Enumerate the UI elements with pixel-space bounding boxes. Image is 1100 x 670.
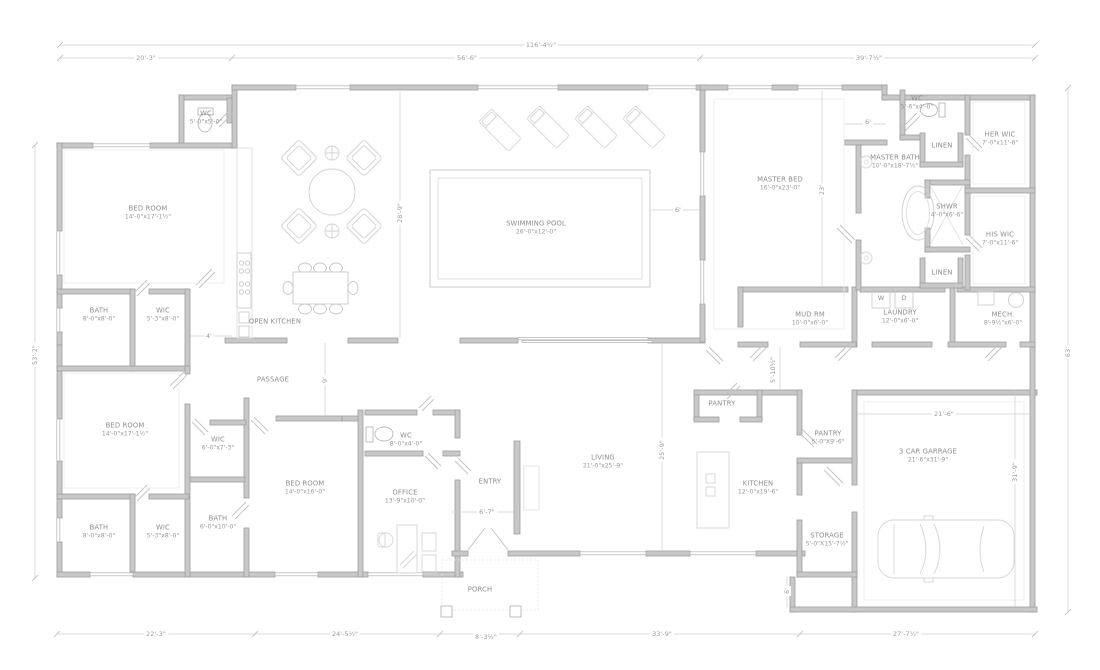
room-label-storage: STORAGE 5'-0"X15'-7½" [806,532,849,549]
room-label-open-kitchen: OPEN KITCHEN [249,318,301,327]
dim-passage: 9' [321,375,329,385]
room-size: 10'-0"x18'-7½" [870,162,920,170]
console-table-icon [524,466,539,510]
room-name: WC [400,432,412,440]
room-label-passage: PASSAGE [257,376,289,385]
room-name: WIC [156,524,170,532]
dim-garage-width: 21'-6" [932,410,956,418]
room-label-wc-1: WC 5'-0"x5'-0" [190,110,222,127]
room-size: 5'-0"X9'-6" [811,438,844,446]
room-name: PORCH [468,586,492,594]
room-name: LIVING [591,454,615,462]
dim-pool-height: 28'-9" [396,201,404,225]
room-label-master-bed: MASTER BED 16'-0"x23'-0" [757,176,803,193]
room-name: OPEN KITCHEN [249,318,301,326]
room-name: HER WIC [985,131,1016,139]
bathtub-icon [902,186,934,240]
room-label-pantry-walkin: PANTRY [709,400,736,409]
room-name: ENTRY [479,478,502,486]
room-size: 6'-0"x7'-3" [202,444,234,452]
dim-top-overall: 116'-4½" [524,41,558,49]
room-name: PANTRY [815,430,842,438]
room-label-porch: PORCH [468,586,492,595]
dim-entry-width: 6'-7" [477,508,497,516]
room-size: 8'-0"x8'-0" [83,532,115,540]
room-label-wic-2: WIC 6'-0"x7'-3" [202,436,234,453]
room-size: 21'-0"x25'-9" [583,462,623,470]
room-name: BED ROOM [129,205,168,213]
room-name: MECH. [992,311,1015,319]
room-size: 10'-0"x6'-0" [792,319,828,327]
room-size: 12'-0"x19'-6" [738,488,778,496]
room-label-bedroom-2: BED ROOM 14'-0"x17'-1½" [102,422,148,439]
room-size: 7'-0"x11'-6" [982,139,1018,147]
dim-bottom-2: 24'-5½" [330,630,360,638]
room-name: LINEN [931,142,952,150]
dim-bottom-5: 27'-7½" [891,630,921,638]
dim-storage-side: 6' [783,586,791,596]
room-size: 5'-3"x8'-0" [147,532,179,540]
room-name: 3 CAR GARRAGE [899,448,957,456]
dim-bottom-3: 8'-3½" [473,633,499,641]
room-size: 5'-6"x4'-0" [901,103,933,111]
washer-label: W [878,294,884,302]
vanity-sinks-icon [860,156,872,264]
room-size: 12'-0"x6'-0" [882,317,918,325]
car-icon [878,516,1014,582]
room-size: 6'-0"x10'-0" [200,523,236,531]
floor-plan-drawing [0,0,1100,670]
room-label-wic-3: WIC 5'-3"x8'-0" [147,524,179,541]
room-name: MUD RM [795,311,825,319]
dim-top-mid: 56'-6" [455,54,479,62]
room-label-master-bath: MASTER BATH 10'-0"x18'-7½" [870,154,920,171]
doors [134,110,1002,550]
room-name: OFFICE [392,489,417,497]
room-name: MASTER BATH [870,154,920,162]
room-name: BATH [209,515,228,523]
lounge-chairs-icon [479,106,665,151]
room-label-mech: MECH. 8'-9½"x6'-0" [984,311,1022,328]
dim-living-height: 25'-9" [658,438,666,462]
room-size: 14'-0"x17'-1½" [125,213,171,221]
room-size: 7'-0"x11'-6" [982,239,1018,247]
room-label-bath-3: BATH 6'-0"x10'-0" [200,515,236,532]
windows [57,86,842,576]
room-label-garage: 3 CAR GARRAGE 21'-6"x31'-9" [899,448,957,465]
room-label-shower: SHWR 4'-0"x6'-6" [931,203,963,220]
room-name: WIC [211,436,225,444]
dim-bottom-4: 33'-9" [650,630,674,638]
room-label-entry: ENTRY [479,478,502,487]
room-size: 21'-6"x31'-9" [899,456,957,464]
water-heater-icon [978,292,1024,308]
room-size: 14'-0"x17'-1½" [102,430,148,438]
kitchen-island-icon [697,452,729,528]
room-label-linen-2: LINEN [931,269,952,278]
sitting-area-icon [281,140,383,245]
room-label-bedroom-1: BED ROOM 14'-0"x17'-1½" [125,205,171,222]
office-desk-icon [378,525,436,573]
room-size: 14'-0"x16'-0" [285,488,325,496]
room-size: 8'-0"x4'-0" [390,440,422,448]
room-label-swimming-pool: SWIMMING POOL 26'-0"x12'-0" [506,220,566,237]
room-name: BED ROOM [286,480,325,488]
room-label-wc-3: WC 5'-6"x4'-0" [901,95,933,112]
room-label-bath-1: BATH 8'-0"x8'-0" [83,307,115,324]
room-name: MASTER BED [757,176,803,184]
room-size: 5'-0"x5'-0" [190,118,222,126]
room-name: BED ROOM [106,422,145,430]
room-size: 8'-0"x8'-0" [83,315,115,323]
dim-pool-right: 6' [673,206,683,214]
dim-master-depth: 23' [818,183,826,197]
dim-right-overall: 63' [1064,345,1072,359]
room-size: 26'-0"x12'-0" [506,228,566,236]
room-name: PASSAGE [257,376,289,384]
room-label-pantry: PANTRY 5'-0"X9'-6" [811,430,844,447]
dim-bottom-1: 22'-3" [144,630,168,638]
room-label-her-wic: HER WIC 7'-0"x11'-6" [982,131,1018,148]
room-label-wc-2: WC 8'-0"x4'-0" [390,432,422,449]
dim-open-kitchen: 4' [204,332,214,340]
room-label-laundry: LAUNDRY 12'-0"x6'-0" [882,309,918,326]
room-name: HIS WIC [986,231,1014,239]
room-name: SWIMMING POOL [506,220,566,228]
dim-left-overall: 53'-2" [31,343,39,367]
room-size: 16'-0"x23'-0" [757,184,803,192]
room-label-his-wic: HIS WIC 7'-0"x11'-6" [982,231,1018,248]
room-label-linen-1: LINEN [931,142,952,151]
dryer-label: D [902,294,907,302]
room-name: WIC [156,307,170,315]
room-name: WC [911,95,923,103]
room-label-bath-2: BATH 8'-0"x8'-0" [83,524,115,541]
room-size: 5'-0"X15'-7½" [806,540,849,548]
room-name: LINEN [931,269,952,277]
dim-mud-height: 5'-10½" [769,355,777,385]
dim-garage-height: 31'-9" [1011,460,1019,484]
room-name: KITCHEN [743,480,774,488]
room-label-wic-1: WIC 5'-3"x8'-0" [147,307,179,324]
dim-mbath-top: 6' [863,118,873,126]
room-label-bedroom-3: BED ROOM 14'-0"x16'-0" [285,480,325,497]
room-label-kitchen: KITCHEN 12'-0"x19'-6" [738,480,778,497]
room-name: STORAGE [810,532,843,540]
room-label-mud-room: MUD RM 10'-0"x6'-0" [792,311,828,328]
dim-top-right: 39'-7½" [854,54,884,62]
dining-table-icon [283,263,358,314]
room-name: WC [200,110,212,118]
room-size: 8'-9½"x6'-0" [984,319,1022,327]
kitchen-counter-icon [237,148,252,338]
room-name: BATH [90,307,109,315]
floor-plan-page: WC 5'-0"x5'-0" BED ROOM 14'-0"x17'-1½" B… [0,0,1100,670]
room-size: 4'-0"x6'-6" [931,211,963,219]
dim-top-left: 20'-3" [134,54,158,62]
room-label-office: OFFICE 13'-9"x10'-0" [385,489,425,506]
room-size: 5'-3"x8'-0" [147,315,179,323]
room-name: PANTRY [709,400,736,408]
room-name: BATH [90,524,109,532]
room-name: LAUNDRY [883,309,916,317]
room-label-living: LIVING 21'-0"x25'-9" [583,454,623,471]
room-name: SHWR [936,203,957,211]
room-size: 13'-9"x10'-0" [385,497,425,505]
